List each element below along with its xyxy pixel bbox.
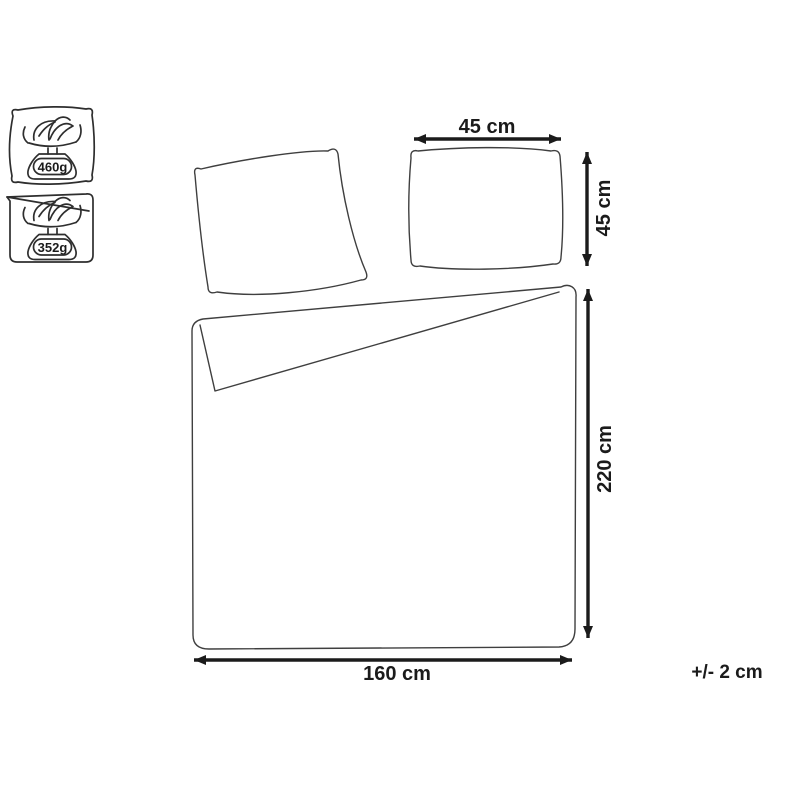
scale-arc-left (23, 127, 28, 143)
bedding-dimension-diagram: 460g 352g (0, 0, 800, 800)
duvet-weight-label: 352g (38, 240, 68, 255)
pillowcase-right (409, 148, 563, 270)
scale-arc-left (23, 208, 28, 224)
dimension-pillow-width: 45 cm (414, 116, 561, 139)
dimension-duvet-height: 220 cm (588, 289, 616, 638)
scale-icon: 460g (23, 117, 81, 179)
feather-curl (55, 198, 70, 202)
weight-icon-pillow: 460g (9, 107, 94, 184)
duvet-height-label: 220 cm (594, 425, 616, 493)
duvet-width-label: 160 cm (363, 663, 431, 685)
pillow-weight-label: 460g (38, 160, 68, 175)
pillowcase-left (195, 149, 367, 294)
duvet-fold-flap (200, 292, 559, 391)
diagram-canvas: 460g 352g (0, 0, 800, 800)
feather-curl (55, 117, 70, 121)
dimension-pillow-height: 45 cm (587, 152, 615, 266)
scale-plate (29, 142, 76, 146)
tolerance-label: +/- 2 cm (691, 662, 762, 683)
duvet-fold-icon (7, 197, 89, 211)
feather-icon (50, 124, 73, 140)
dimension-duvet-width: 160 cm (194, 660, 572, 685)
duvet-body (192, 285, 576, 649)
scale-stem (48, 229, 57, 235)
weight-icon-duvet: 352g (7, 194, 93, 262)
scale-plate (29, 223, 76, 227)
scale-arc-right (76, 125, 81, 142)
pillow-width-label: 45 cm (459, 116, 516, 138)
scale-icon: 352g (23, 198, 81, 260)
duvet-cover (192, 285, 576, 649)
pillow-height-label: 45 cm (593, 180, 615, 237)
scale-stem (48, 148, 57, 154)
